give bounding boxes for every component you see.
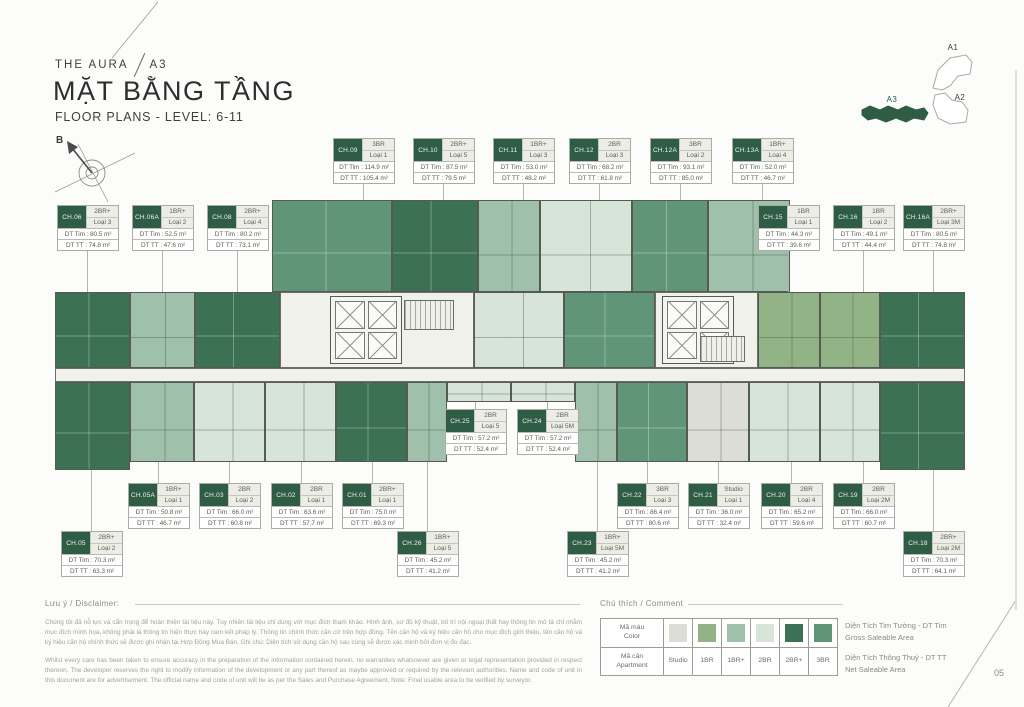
elevator-icon bbox=[667, 301, 697, 329]
unit-label-CH.08: CH.08 2BR+ Loại 4 DT Tim : 80.2 m² DT TT… bbox=[207, 205, 269, 251]
floorplan-unit-CH.26 bbox=[407, 382, 447, 462]
unit-label-CH.23: CH.23 1BR+ Loại 5M DT Tim : 45.2 m² DT T… bbox=[567, 531, 629, 577]
unit-dt-tt: DT TT : 69.3 m² bbox=[343, 517, 403, 528]
unit-type: 2BR bbox=[546, 410, 578, 422]
unit-variant: Loại 5 bbox=[442, 151, 474, 162]
unit-type: 1BR+ bbox=[426, 532, 458, 544]
unit-variant: Loại 1 bbox=[787, 218, 819, 229]
unit-variant: Loại 1 bbox=[717, 496, 749, 507]
unit-label-CH.13A: CH.13A 1BR+ Loại 4 DT Tim : 52.0 m² DT T… bbox=[732, 138, 794, 184]
disclaimer-text-vi: Chúng tôi đã nỗ lực và cẩn trọng để hoàn… bbox=[45, 618, 582, 648]
unit-code: CH.11 bbox=[494, 139, 522, 161]
floorplan-unit-CH.18 bbox=[880, 382, 965, 470]
legend-swatch-1BR bbox=[692, 619, 721, 647]
unit-variant: Loại 3 bbox=[646, 496, 678, 507]
unit-label-CH.11: CH.11 1BR+ Loại 3 DT Tim : 53.0 m² DT TT… bbox=[493, 138, 555, 184]
unit-code: CH.15 bbox=[759, 206, 787, 228]
unit-code: CH.09 bbox=[334, 139, 362, 161]
unit-dt-tim: DT Tim : 114.9 m² bbox=[334, 161, 394, 172]
unit-label-CH.12A: CH.12A 3BR Loại 2 DT Tim : 93.1 m² DT TT… bbox=[650, 138, 712, 184]
floorplan-unit-CH.24 bbox=[511, 382, 575, 402]
unit-dt-tim: DT Tim : 36.0 m² bbox=[689, 506, 749, 517]
color-swatch bbox=[727, 624, 745, 642]
floorplan-unit-CH.06 bbox=[55, 292, 130, 368]
unit-variant: Loại 1 bbox=[157, 496, 189, 507]
unit-code: CH.25 bbox=[446, 410, 474, 432]
floorplan-unit-CH.12 bbox=[540, 200, 632, 292]
unit-type: 1BR+ bbox=[522, 139, 554, 151]
unit-dt-tt: DT TT : 47.6 m² bbox=[133, 239, 193, 250]
color-swatch bbox=[814, 624, 832, 642]
legend-note-gross-vi: Diện Tích Tim Tường - DT Tim bbox=[845, 620, 1015, 632]
unit-code: CH.18 bbox=[904, 532, 932, 554]
unit-dt-tim: DT Tim : 70.3 m² bbox=[904, 554, 964, 565]
unit-dt-tim: DT Tim : 80.5 m² bbox=[904, 228, 964, 239]
legend-swatch-1BR+ bbox=[721, 619, 750, 647]
color-swatch bbox=[785, 624, 803, 642]
floorplan-unit-CH.02 bbox=[265, 382, 336, 462]
floorplan-unit-CH.06A bbox=[130, 292, 195, 368]
unit-dt-tim: DT Tim : 52.5 m² bbox=[133, 228, 193, 239]
legend-apartment-row-label: Mã cănApartment bbox=[601, 647, 663, 675]
unit-connector-CH.16A bbox=[933, 249, 934, 292]
elevator-icon bbox=[368, 301, 398, 329]
unit-dt-tim: DT Tim : 50.8 m² bbox=[129, 506, 189, 517]
unit-dt-tim: DT Tim : 57.2 m² bbox=[446, 432, 506, 443]
disclaimer-rule bbox=[135, 604, 580, 605]
unit-dt-tim: DT Tim : 44.3 m² bbox=[759, 228, 819, 239]
unit-dt-tim: DT Tim : 66.0 m² bbox=[200, 506, 260, 517]
unit-connector-CH.25 bbox=[475, 402, 476, 409]
unit-code: CH.13A bbox=[733, 139, 761, 161]
unit-variant: Loại 4 bbox=[790, 496, 822, 507]
unit-type: 2BR bbox=[228, 484, 260, 496]
unit-dt-tim: DT Tim : 80.2 m² bbox=[208, 228, 268, 239]
legend-heading: Chú thích / Comment bbox=[600, 599, 683, 608]
unit-connector-CH.05 bbox=[91, 470, 92, 531]
unit-variant: Loại 2 bbox=[161, 218, 193, 229]
elevator-icon bbox=[368, 332, 398, 360]
unit-label-CH.10: CH.10 2BR+ Loại 5 DT Tim : 87.5 m² DT TT… bbox=[413, 138, 475, 184]
unit-connector-CH.03 bbox=[229, 462, 230, 483]
floorplan-unit-CH.16 bbox=[820, 292, 880, 368]
unit-variant: Loại 5M bbox=[546, 422, 578, 433]
unit-label-CH.06A: CH.06A 1BR+ Loại 2 DT Tim : 52.5 m² DT T… bbox=[132, 205, 194, 251]
unit-dt-tt: DT TT : 32.4 m² bbox=[689, 517, 749, 528]
unit-label-CH.21: CH.21 Studio Loại 1 DT Tim : 36.0 m² DT … bbox=[688, 483, 750, 529]
floorplan-stair bbox=[404, 300, 454, 330]
unit-code: CH.24 bbox=[518, 410, 546, 432]
page-number: 05 bbox=[994, 668, 1004, 678]
unit-type: 2BR+ bbox=[90, 532, 122, 544]
unit-connector-CH.01 bbox=[372, 462, 373, 483]
unit-variant: Loại 4 bbox=[761, 151, 793, 162]
unit-code: CH.03 bbox=[200, 484, 228, 506]
unit-variant: Loại 2M bbox=[862, 496, 894, 507]
unit-label-CH.02: CH.02 2BR Loại 1 DT Tim : 63.6 m² DT TT … bbox=[271, 483, 333, 529]
unit-dt-tt: DT TT : 59.6 m² bbox=[762, 517, 822, 528]
floor-plan-page: THE AURA A3 MẶT BẰNG TẦNG FLOOR PLANS - … bbox=[0, 0, 1024, 707]
unit-dt-tim: DT Tim : 52.0 m² bbox=[733, 161, 793, 172]
floorplan-unit-CH.22 bbox=[617, 382, 687, 462]
unit-connector-CH.18 bbox=[933, 470, 934, 531]
unit-type: 2BR+ bbox=[932, 532, 964, 544]
unit-dt-tim: DT Tim : 75.0 m² bbox=[343, 506, 403, 517]
unit-label-CH.19: CH.19 2BR Loại 2M DT Tim : 66.0 m² DT TT… bbox=[833, 483, 895, 529]
unit-code: CH.20 bbox=[762, 484, 790, 506]
unit-connector-CH.20 bbox=[791, 462, 792, 483]
legend-type-3BR: 3BR bbox=[808, 647, 837, 675]
disclaimer-heading: Lưu ý / Disclaimer: bbox=[45, 599, 119, 608]
unit-variant: Loại 1 bbox=[300, 496, 332, 507]
unit-variant: Loại 3 bbox=[598, 151, 630, 162]
unit-variant: Loại 3M bbox=[932, 218, 964, 229]
unit-dt-tim: DT Tim : 53.0 m² bbox=[494, 161, 554, 172]
legend-note-gross: Diện Tích Tim Tường - DT Tim Gross Salea… bbox=[845, 620, 1015, 643]
unit-label-CH.12: CH.12 2BR Loại 3 DT Tim : 68.2 m² DT TT … bbox=[569, 138, 631, 184]
unit-dt-tt: DT TT : 57.7 m² bbox=[272, 517, 332, 528]
legend-table: Mã màuColorMã cănApartmentStudio1BR1BR+2… bbox=[600, 618, 838, 676]
unit-dt-tim: DT Tim : 93.1 m² bbox=[651, 161, 711, 172]
unit-label-CH.16A: CH.16A 2BR+ Loại 3M DT Tim : 80.5 m² DT … bbox=[903, 205, 965, 251]
unit-dt-tim: DT Tim : 57.2 m² bbox=[518, 432, 578, 443]
unit-variant: Loại 1 bbox=[362, 151, 394, 162]
legend-swatch-3BR bbox=[808, 619, 837, 647]
floorplan-unit-CH.10 bbox=[392, 200, 478, 292]
unit-code: CH.19 bbox=[834, 484, 862, 506]
floorplan-unit-CH.08 bbox=[195, 292, 280, 368]
unit-dt-tt: DT TT : 73.1 m² bbox=[208, 239, 268, 250]
unit-variant: Loại 2 bbox=[228, 496, 260, 507]
legend-type-1BR: 1BR bbox=[692, 647, 721, 675]
unit-dt-tt: DT TT : 79.5 m² bbox=[414, 172, 474, 183]
floorplan-unit-CH.19 bbox=[820, 382, 880, 462]
legend-color-row-label: Mã màuColor bbox=[601, 619, 663, 647]
floorplan-unit-CH.15 bbox=[758, 292, 820, 368]
legend-note-net-vi: Diện Tích Thông Thuỷ - DT TT bbox=[845, 652, 1015, 664]
unit-dt-tt: DT TT : 64.1 m² bbox=[904, 565, 964, 576]
unit-label-CH.16: CH.16 1BR Loại 2 DT Tim : 49.1 m² DT TT … bbox=[833, 205, 895, 251]
unit-connector-CH.12A bbox=[680, 182, 681, 200]
legend-type-2BR+: 2BR+ bbox=[779, 647, 808, 675]
unit-variant: Loại 5 bbox=[474, 422, 506, 433]
unit-type: 1BR+ bbox=[157, 484, 189, 496]
unit-label-CH.24: CH.24 2BR Loại 5M DT Tim : 57.2 m² DT TT… bbox=[517, 409, 579, 455]
unit-variant: Loại 3 bbox=[86, 218, 118, 229]
floorplan-unit-CH.11 bbox=[478, 200, 540, 292]
floorplan-unit-CH.03 bbox=[194, 382, 265, 462]
unit-code: CH.23 bbox=[568, 532, 596, 554]
unit-dt-tt: DT TT : 74.8 m² bbox=[58, 239, 118, 250]
unit-variant: Loại 2M bbox=[932, 544, 964, 555]
unit-variant: Loại 1 bbox=[371, 496, 403, 507]
unit-dt-tim: DT Tim : 80.5 m² bbox=[58, 228, 118, 239]
legend-rule bbox=[688, 604, 843, 605]
unit-type: 2BR+ bbox=[371, 484, 403, 496]
unit-dt-tt: DT TT : 60.8 m² bbox=[200, 517, 260, 528]
unit-dt-tt: DT TT : 74.8 m² bbox=[904, 239, 964, 250]
elevator-icon bbox=[700, 301, 730, 329]
unit-label-CH.20: CH.20 2BR Loại 4 DT Tim : 65.2 m² DT TT … bbox=[761, 483, 823, 529]
unit-label-CH.18: CH.18 2BR+ Loại 2M DT Tim : 70.3 m² DT T… bbox=[903, 531, 965, 577]
unit-connector-CH.11 bbox=[523, 182, 524, 200]
floorplan-unit-CH.01 bbox=[336, 382, 407, 462]
unit-dt-tt: DT TT : 105.4 m² bbox=[334, 172, 394, 183]
unit-variant: Loại 2 bbox=[679, 151, 711, 162]
floorplan-corridor bbox=[55, 368, 965, 382]
unit-dt-tt: DT TT : 46.7 m² bbox=[733, 172, 793, 183]
unit-code: CH.26 bbox=[398, 532, 426, 554]
floorplan-unit-CH.12A bbox=[632, 200, 708, 292]
unit-type: 1BR bbox=[787, 206, 819, 218]
unit-variant: Loại 3 bbox=[522, 151, 554, 162]
unit-dt-tt: DT TT : 52.4 m² bbox=[446, 443, 506, 454]
unit-type: 1BR+ bbox=[761, 139, 793, 151]
unit-dt-tt: DT TT : 61.8 m² bbox=[570, 172, 630, 183]
unit-dt-tim: DT Tim : 68.2 m² bbox=[570, 161, 630, 172]
floorplan-unit-CH.05A bbox=[130, 382, 194, 462]
unit-connector-CH.16 bbox=[863, 249, 864, 292]
floorplan-unit-CH.16A bbox=[880, 292, 965, 368]
disclaimer-text-en: Whilst every care has been taken to ensu… bbox=[45, 656, 582, 686]
unit-type: 3BR bbox=[646, 484, 678, 496]
elevator-icon bbox=[335, 301, 365, 329]
legend-note-net: Diện Tích Thông Thuỷ - DT TT Net Saleabl… bbox=[845, 652, 1015, 675]
unit-connector-CH.06 bbox=[87, 249, 88, 292]
unit-code: CH.08 bbox=[208, 206, 236, 228]
unit-code: CH.16A bbox=[904, 206, 932, 228]
unit-variant: Loại 5 bbox=[426, 544, 458, 555]
elevator-icon bbox=[335, 332, 365, 360]
floorplan-unit-CH.23 bbox=[575, 382, 617, 462]
unit-dt-tim: DT Tim : 45.2 m² bbox=[398, 554, 458, 565]
unit-connector-CH.05A bbox=[158, 462, 159, 483]
unit-connector-CH.06A bbox=[162, 249, 163, 292]
unit-connector-CH.22 bbox=[647, 462, 648, 483]
legend-note-net-en: Net Saleable Area bbox=[845, 664, 1015, 676]
floorplan-lifts bbox=[330, 296, 402, 364]
unit-connector-CH.08 bbox=[237, 249, 238, 292]
unit-code: CH.02 bbox=[272, 484, 300, 506]
floorplan-stair bbox=[700, 336, 745, 362]
legend-swatch-2BR bbox=[750, 619, 779, 647]
legend-type-Studio: Studio bbox=[663, 647, 692, 675]
unit-code: CH.21 bbox=[689, 484, 717, 506]
legend-type-1BR+: 1BR+ bbox=[721, 647, 750, 675]
unit-code: CH.06 bbox=[58, 206, 86, 228]
unit-dt-tt: DT TT : 48.2 m² bbox=[494, 172, 554, 183]
unit-code: CH.16 bbox=[834, 206, 862, 228]
unit-connector-CH.09 bbox=[363, 182, 364, 200]
unit-label-CH.01: CH.01 2BR+ Loại 1 DT Tim : 75.0 m² DT TT… bbox=[342, 483, 404, 529]
unit-dt-tim: DT Tim : 49.1 m² bbox=[834, 228, 894, 239]
unit-variant: Loại 2 bbox=[862, 218, 894, 229]
unit-dt-tt: DT TT : 44.4 m² bbox=[834, 239, 894, 250]
legend-swatch-2BR+ bbox=[779, 619, 808, 647]
unit-dt-tt: DT TT : 80.6 m² bbox=[618, 517, 678, 528]
unit-type: Studio bbox=[717, 484, 749, 496]
floorplan-unit-CH.25 bbox=[447, 382, 511, 402]
unit-label-CH.22: CH.22 3BR Loại 3 DT Tim : 86.4 m² DT TT … bbox=[617, 483, 679, 529]
unit-type: 1BR+ bbox=[161, 206, 193, 218]
unit-type: 2BR bbox=[790, 484, 822, 496]
unit-variant: Loại 5M bbox=[596, 544, 628, 555]
unit-code: CH.12A bbox=[651, 139, 679, 161]
unit-type: 2BR bbox=[300, 484, 332, 496]
unit-variant: Loại 2 bbox=[90, 544, 122, 555]
unit-dt-tt: DT TT : 52.4 m² bbox=[518, 443, 578, 454]
floorplan-2BR bbox=[474, 292, 564, 368]
unit-label-CH.06: CH.06 2BR+ Loại 3 DT Tim : 80.5 m² DT TT… bbox=[57, 205, 119, 251]
unit-label-CH.05A: CH.05A 1BR+ Loại 1 DT Tim : 50.8 m² DT T… bbox=[128, 483, 190, 529]
unit-type: 2BR bbox=[598, 139, 630, 151]
unit-type: 2BR+ bbox=[236, 206, 268, 218]
unit-connector-CH.13A bbox=[762, 182, 763, 200]
unit-dt-tim: DT Tim : 66.0 m² bbox=[834, 506, 894, 517]
unit-connector-CH.02 bbox=[301, 462, 302, 483]
unit-dt-tt: DT TT : 39.6 m² bbox=[759, 239, 819, 250]
unit-code: CH.06A bbox=[133, 206, 161, 228]
unit-connector-CH.10 bbox=[443, 182, 444, 200]
unit-type: 1BR bbox=[862, 206, 894, 218]
unit-code: CH.12 bbox=[570, 139, 598, 161]
unit-connector-CH.24 bbox=[547, 402, 548, 409]
unit-code: CH.05 bbox=[62, 532, 90, 554]
unit-connector-CH.26 bbox=[427, 462, 428, 531]
unit-connector-CH.12 bbox=[599, 182, 600, 200]
unit-type: 2BR bbox=[474, 410, 506, 422]
unit-label-CH.15: CH.15 1BR Loại 1 DT Tim : 44.3 m² DT TT … bbox=[758, 205, 820, 251]
unit-connector-CH.19 bbox=[863, 462, 864, 483]
unit-dt-tt: DT TT : 60.7 m² bbox=[834, 517, 894, 528]
unit-dt-tt: DT TT : 41.2 m² bbox=[398, 565, 458, 576]
legend-type-2BR: 2BR bbox=[750, 647, 779, 675]
unit-connector-CH.15 bbox=[788, 249, 789, 292]
floorplan-unit-CH.21 bbox=[687, 382, 749, 462]
unit-label-CH.25: CH.25 2BR Loại 5 DT Tim : 57.2 m² DT TT … bbox=[445, 409, 507, 455]
unit-connector-CH.23 bbox=[597, 462, 598, 531]
unit-label-CH.26: CH.26 1BR+ Loại 5 DT Tim : 45.2 m² DT TT… bbox=[397, 531, 459, 577]
unit-variant: Loại 4 bbox=[236, 218, 268, 229]
legend-note-gross-en: Gross Saleable Area bbox=[845, 632, 1015, 644]
unit-dt-tt: DT TT : 85.0 m² bbox=[651, 172, 711, 183]
floorplan-drawing bbox=[0, 0, 1024, 707]
unit-dt-tim: DT Tim : 65.2 m² bbox=[762, 506, 822, 517]
unit-code: CH.01 bbox=[343, 484, 371, 506]
unit-dt-tim: DT Tim : 70.3 m² bbox=[62, 554, 122, 565]
floorplan-unit-CH.09 bbox=[272, 200, 392, 292]
unit-label-CH.05: CH.05 2BR+ Loại 2 DT Tim : 70.3 m² DT TT… bbox=[61, 531, 123, 577]
unit-connector-CH.21 bbox=[718, 462, 719, 483]
unit-type: 1BR+ bbox=[596, 532, 628, 544]
unit-type: 2BR bbox=[862, 484, 894, 496]
unit-type: 2BR+ bbox=[442, 139, 474, 151]
unit-dt-tt: DT TT : 41.2 m² bbox=[568, 565, 628, 576]
unit-type: 3BR bbox=[362, 139, 394, 151]
unit-type: 2BR+ bbox=[932, 206, 964, 218]
unit-type: 3BR bbox=[679, 139, 711, 151]
unit-label-CH.03: CH.03 2BR Loại 2 DT Tim : 66.0 m² DT TT … bbox=[199, 483, 261, 529]
unit-dt-tim: DT Tim : 86.4 m² bbox=[618, 506, 678, 517]
color-swatch bbox=[698, 624, 716, 642]
color-swatch bbox=[756, 624, 774, 642]
unit-dt-tt: DT TT : 63.3 m² bbox=[62, 565, 122, 576]
legend-swatch-Studio bbox=[663, 619, 692, 647]
color-swatch bbox=[669, 624, 687, 642]
floorplan-unit-CH.20 bbox=[749, 382, 820, 462]
floorplan-unit-CH.05 bbox=[55, 382, 130, 470]
unit-code: CH.05A bbox=[129, 484, 157, 506]
floorplan-3BR bbox=[564, 292, 655, 368]
elevator-icon bbox=[667, 332, 697, 360]
unit-dt-tim: DT Tim : 63.6 m² bbox=[272, 506, 332, 517]
unit-dt-tim: DT Tim : 87.5 m² bbox=[414, 161, 474, 172]
unit-code: CH.10 bbox=[414, 139, 442, 161]
unit-label-CH.09: CH.09 3BR Loại 1 DT Tim : 114.9 m² DT TT… bbox=[333, 138, 395, 184]
unit-dt-tt: DT TT : 46.7 m² bbox=[129, 517, 189, 528]
unit-code: CH.22 bbox=[618, 484, 646, 506]
unit-type: 2BR+ bbox=[86, 206, 118, 218]
unit-dt-tim: DT Tim : 45.2 m² bbox=[568, 554, 628, 565]
